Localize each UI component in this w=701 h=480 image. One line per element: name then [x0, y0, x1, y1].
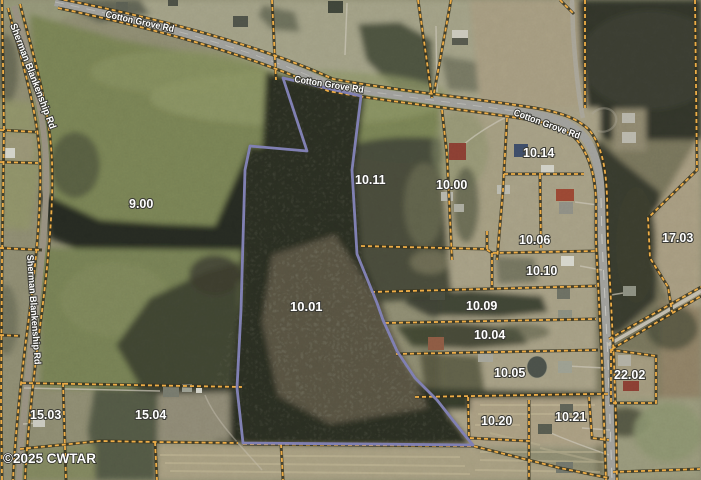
svg-text:10.09: 10.09: [466, 299, 497, 313]
svg-text:10.06: 10.06: [519, 233, 550, 247]
svg-text:10.05: 10.05: [494, 366, 525, 380]
svg-text:17.03: 17.03: [662, 231, 693, 245]
svg-text:9.00: 9.00: [129, 197, 153, 211]
svg-text:15.03: 15.03: [30, 408, 61, 422]
svg-text:10.14: 10.14: [523, 146, 554, 160]
svg-text:10.20: 10.20: [481, 414, 512, 428]
svg-text:15.04: 15.04: [135, 408, 166, 422]
svg-text:10.00: 10.00: [436, 178, 467, 192]
svg-text:10.01: 10.01: [290, 299, 323, 314]
svg-text:10.04: 10.04: [474, 328, 505, 342]
svg-text:10.21: 10.21: [555, 410, 586, 424]
svg-text:22.02: 22.02: [614, 368, 645, 382]
svg-text:©2025 CWTAR: ©2025 CWTAR: [3, 451, 96, 466]
svg-text:10.10: 10.10: [526, 264, 557, 278]
svg-text:10.11: 10.11: [355, 173, 386, 187]
